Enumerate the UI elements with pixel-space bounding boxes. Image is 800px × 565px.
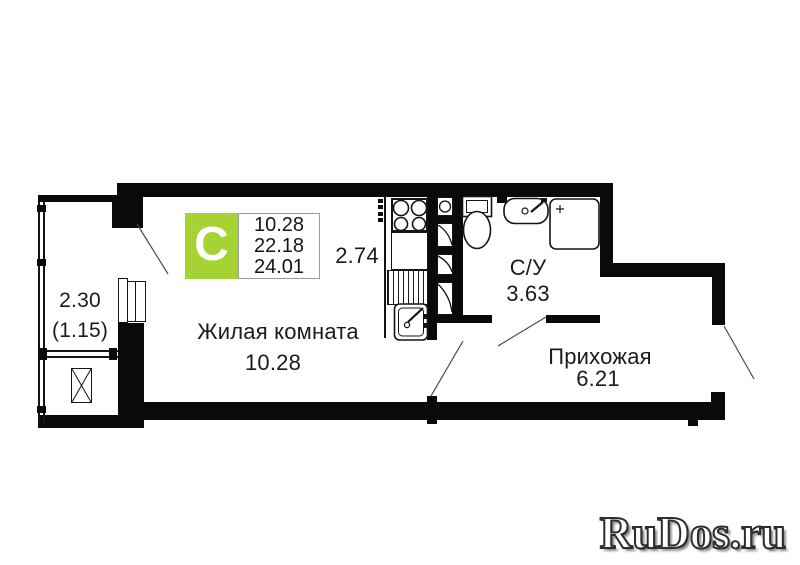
entrance-door-swing xyxy=(724,326,754,379)
balcony-door-swing xyxy=(137,224,168,274)
bathroom-area: 3.63 xyxy=(506,281,550,307)
bathroom-door-swing xyxy=(498,317,546,346)
x-box-cross xyxy=(72,369,91,402)
living-room-area: 10.28 xyxy=(245,350,301,376)
living-room-label: Жилая комната xyxy=(197,319,359,345)
kitchen-sink-symbol xyxy=(395,304,430,340)
room-door-swing xyxy=(431,341,463,396)
watermark-rudos: RuDos.ru xyxy=(600,507,786,559)
floor-plan: С 10.28 22.18 24.01 2.74 Жилая комната 1… xyxy=(0,0,800,565)
bathroom-label: С/У xyxy=(510,255,547,281)
stove-burners xyxy=(394,201,427,231)
hallway-area: 6.21 xyxy=(576,366,620,392)
apartment-areas-box: 10.28 22.18 24.01 xyxy=(238,213,320,279)
fixtures-layer xyxy=(0,0,800,565)
shower-tray-symbol xyxy=(550,199,599,249)
kitchen-area-label: 2.74 xyxy=(335,243,379,269)
balcony-area: 2.30 xyxy=(59,289,101,313)
toilet-symbol xyxy=(463,197,492,249)
area-no-balcony-value: 22.18 xyxy=(239,236,319,257)
area-total-value: 24.01 xyxy=(239,257,319,278)
washbasin-symbol xyxy=(504,198,548,224)
balcony-reduced-area: (1.15) xyxy=(52,319,108,343)
area-living-value: 10.28 xyxy=(239,215,319,236)
shaft-symbols xyxy=(438,201,452,312)
apartment-type-badge: С xyxy=(185,213,238,279)
